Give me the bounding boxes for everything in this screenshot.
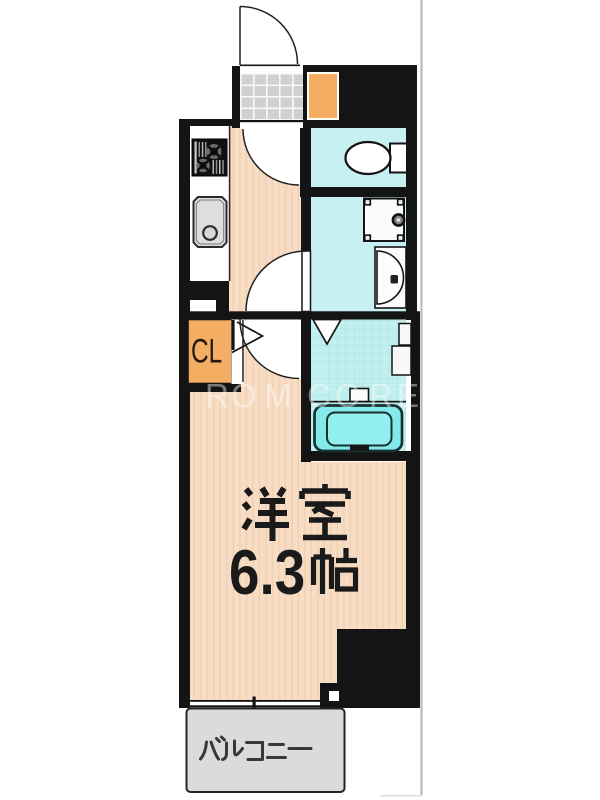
svg-text:C: C	[307, 377, 331, 414]
svg-text:O: O	[231, 377, 257, 414]
svg-text:R: R	[369, 377, 393, 414]
svg-text:R: R	[205, 377, 229, 414]
svg-text:6.3: 6.3	[229, 537, 305, 607]
svg-text:E: E	[397, 377, 419, 414]
svg-text:O: O	[335, 377, 361, 414]
svg-text:CL: CL	[191, 333, 222, 371]
svg-text:M: M	[264, 377, 292, 414]
